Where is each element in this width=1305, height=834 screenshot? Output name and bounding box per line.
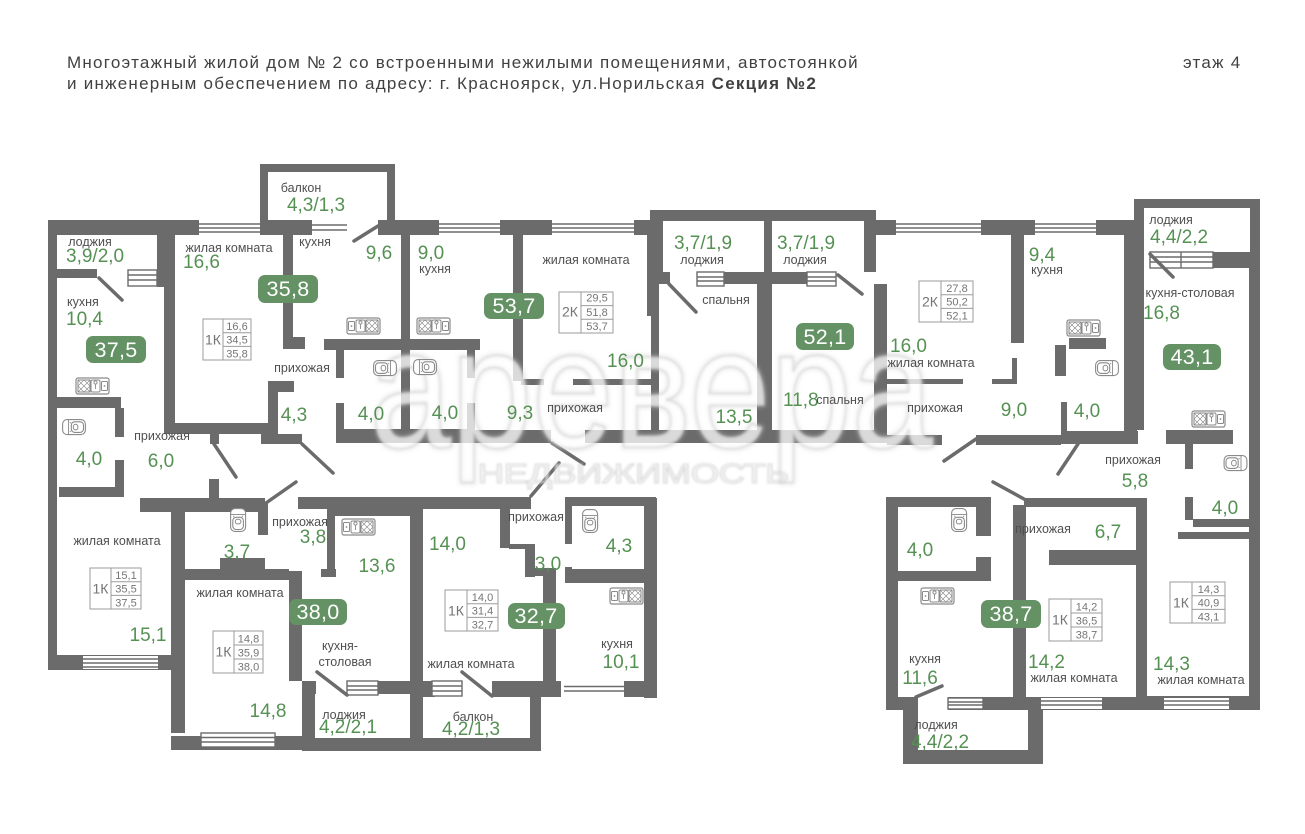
svg-text:13,5: 13,5	[716, 407, 753, 428]
svg-text:14,0: 14,0	[429, 534, 466, 555]
svg-text:4,4/2,2: 4,4/2,2	[1150, 227, 1208, 248]
svg-text:лоджия: лоджия	[1149, 213, 1193, 227]
svg-text:жилая комната: жилая комната	[196, 586, 283, 600]
svg-text:прихожая: прихожая	[134, 429, 190, 443]
svg-text:жилая комната: жилая комната	[427, 657, 514, 671]
svg-text:14,3: 14,3	[1153, 654, 1190, 675]
svg-text:14,2: 14,2	[1076, 601, 1097, 613]
svg-text:14,8: 14,8	[250, 701, 287, 722]
svg-text:35,8: 35,8	[226, 348, 247, 360]
svg-text:лоджия: лоджия	[783, 253, 827, 267]
svg-text:4,3: 4,3	[281, 405, 307, 426]
svg-text:спальня: спальня	[816, 393, 863, 407]
svg-text:50,2: 50,2	[946, 297, 967, 309]
svg-text:9,3: 9,3	[507, 403, 533, 424]
svg-text:10,4: 10,4	[66, 309, 103, 330]
svg-text:15,1: 15,1	[130, 625, 167, 646]
svg-text:3,7/1,9: 3,7/1,9	[674, 233, 732, 254]
svg-text:4,0: 4,0	[1212, 498, 1238, 519]
svg-text:лоджия: лоджия	[914, 718, 958, 732]
svg-text:кухня: кухня	[419, 262, 451, 276]
svg-text:кухня-столовая: кухня-столовая	[1145, 286, 1234, 300]
svg-text:6,0: 6,0	[148, 451, 174, 472]
svg-text:НЕДВИЖИМОСТЬ: НЕДВИЖИМОСТЬ	[478, 458, 789, 489]
svg-text:38,0: 38,0	[238, 661, 259, 673]
svg-text:2К: 2К	[922, 294, 939, 310]
svg-text:3,0: 3,0	[535, 554, 561, 575]
svg-text:столовая: столовая	[318, 655, 371, 669]
svg-text:лоджия: лоджия	[680, 253, 724, 267]
svg-text:37,5: 37,5	[115, 597, 136, 609]
svg-text:кухня: кухня	[1031, 263, 1063, 277]
svg-text:36,5: 36,5	[1076, 615, 1097, 627]
svg-text:16,6: 16,6	[183, 252, 220, 273]
svg-text:1К: 1К	[205, 332, 222, 348]
svg-text:16,0: 16,0	[607, 351, 644, 372]
svg-text:31,4: 31,4	[472, 606, 493, 618]
svg-text:прихожая: прихожая	[547, 401, 603, 415]
svg-text:4,0: 4,0	[907, 540, 933, 561]
svg-text:жилая комната: жилая комната	[542, 253, 629, 267]
svg-text:и инженерным обеспечением по а: и инженерным обеспечением по адресу: г. …	[67, 74, 817, 93]
svg-text:3,7/1,9: 3,7/1,9	[777, 233, 835, 254]
svg-text:этаж 4: этаж 4	[1183, 53, 1241, 72]
svg-text:11,8: 11,8	[783, 390, 819, 411]
svg-text:спальня: спальня	[702, 293, 749, 307]
svg-text:38,7: 38,7	[1076, 629, 1097, 641]
svg-text:3,8: 3,8	[300, 527, 326, 548]
svg-text:жилая комната: жилая комната	[1030, 671, 1117, 685]
svg-text:1К: 1К	[93, 581, 110, 597]
svg-text:14,8: 14,8	[238, 633, 259, 645]
svg-text:балкон: балкон	[281, 181, 322, 195]
svg-text:11,6: 11,6	[902, 668, 938, 689]
svg-text:прихожая: прихожая	[907, 401, 963, 415]
svg-text:4,0: 4,0	[76, 449, 102, 470]
svg-text:34,5: 34,5	[226, 335, 247, 347]
svg-text:6,7: 6,7	[1095, 522, 1121, 543]
svg-text:прихожая: прихожая	[1105, 453, 1161, 467]
svg-text:16,0: 16,0	[890, 336, 927, 357]
svg-text:4,4/2,2: 4,4/2,2	[911, 732, 969, 753]
svg-text:4,0: 4,0	[358, 404, 384, 425]
svg-text:1К: 1К	[448, 603, 465, 619]
svg-text:5,8: 5,8	[1122, 471, 1148, 492]
svg-text:1К: 1К	[1052, 612, 1069, 628]
svg-text:43,1: 43,1	[1198, 612, 1219, 624]
svg-text:40,9: 40,9	[1198, 598, 1219, 610]
svg-text:кухня: кухня	[67, 295, 99, 309]
svg-text:прихожая: прихожая	[274, 361, 330, 375]
svg-text:52,1: 52,1	[803, 325, 846, 349]
svg-text:Многоэтажный жилой дом № 2 со: Многоэтажный жилой дом № 2 со встроенным…	[67, 53, 859, 72]
svg-text:15,1: 15,1	[115, 570, 136, 582]
svg-text:35,8: 35,8	[266, 277, 309, 301]
svg-text:10,1: 10,1	[603, 652, 640, 673]
svg-text:51,8: 51,8	[586, 307, 607, 319]
svg-text:14,3: 14,3	[1198, 584, 1219, 596]
svg-text:1К: 1К	[216, 644, 233, 660]
svg-text:2К: 2К	[562, 304, 579, 320]
svg-text:14,2: 14,2	[1028, 652, 1065, 673]
svg-text:9,0: 9,0	[1001, 400, 1027, 421]
svg-text:3,9/2,0: 3,9/2,0	[66, 246, 124, 267]
svg-text:16,6: 16,6	[226, 321, 247, 333]
svg-text:53,7: 53,7	[492, 294, 535, 318]
svg-text:53,7: 53,7	[586, 321, 607, 333]
svg-text:35,9: 35,9	[238, 647, 259, 659]
svg-text:кухня-: кухня-	[322, 639, 358, 653]
svg-text:52,1: 52,1	[946, 310, 967, 322]
svg-text:4,3/1,3: 4,3/1,3	[287, 195, 345, 216]
svg-text:35,5: 35,5	[115, 584, 136, 596]
svg-text:3,7: 3,7	[224, 542, 250, 563]
svg-text:9,0: 9,0	[418, 243, 444, 264]
svg-text:аревера: аревера	[370, 294, 933, 484]
svg-text:1К: 1К	[1173, 595, 1190, 611]
svg-text:13,6: 13,6	[359, 556, 396, 577]
svg-text:кухня: кухня	[909, 652, 941, 666]
svg-text:4,2/1,3: 4,2/1,3	[442, 719, 500, 740]
svg-text:кухня: кухня	[299, 235, 331, 249]
svg-text:жилая комната: жилая комната	[887, 356, 974, 370]
svg-text:29,5: 29,5	[586, 293, 607, 305]
svg-text:43,1: 43,1	[1170, 345, 1213, 369]
svg-text:жилая комната: жилая комната	[1157, 673, 1244, 687]
svg-text:4,2/2,1: 4,2/2,1	[319, 717, 377, 738]
svg-text:14,0: 14,0	[472, 592, 493, 604]
svg-text:27,8: 27,8	[946, 283, 967, 295]
svg-text:9,6: 9,6	[366, 243, 392, 264]
svg-text:38,7: 38,7	[989, 602, 1032, 626]
svg-text:37,5: 37,5	[94, 338, 137, 362]
svg-text:прихожая: прихожая	[508, 510, 564, 524]
svg-text:жилая комната: жилая комната	[73, 534, 160, 548]
svg-text:4,0: 4,0	[432, 403, 458, 424]
svg-text:38,0: 38,0	[296, 600, 339, 624]
svg-text:прихожая: прихожая	[1015, 522, 1071, 536]
svg-text:4,0: 4,0	[1074, 401, 1100, 422]
svg-text:16,8: 16,8	[1143, 303, 1180, 324]
svg-text:4,3: 4,3	[606, 536, 632, 557]
svg-text:32,7: 32,7	[514, 604, 557, 628]
svg-text:кухня: кухня	[601, 637, 633, 651]
svg-text:32,7: 32,7	[472, 619, 493, 631]
